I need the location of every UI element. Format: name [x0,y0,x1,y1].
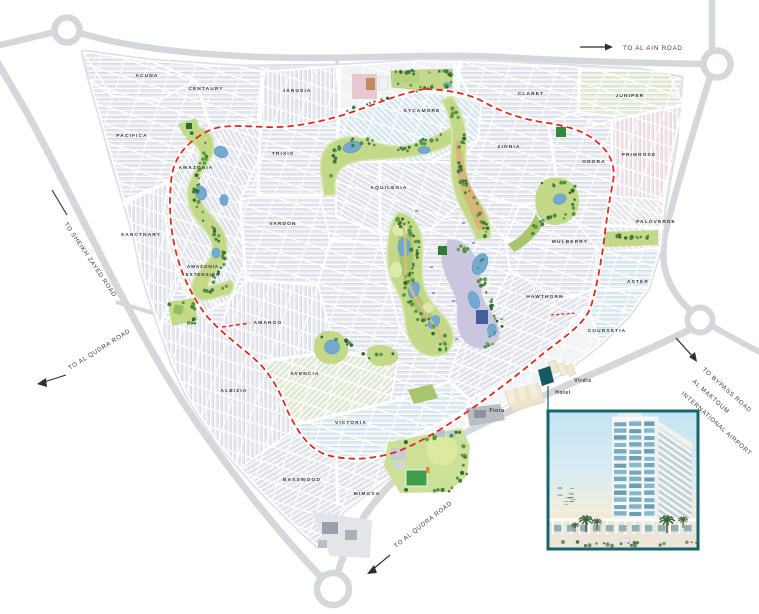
svg-text:TO AL QUDRA ROAD: TO AL QUDRA ROAD [393,500,454,550]
svg-text:TO AL AIN ROAD: TO AL AIN ROAD [623,45,683,52]
svg-text:AQUILEGIA: AQUILEGIA [371,185,408,191]
svg-text:BASSWOOD: BASSWOOD [283,477,321,483]
svg-text:SANCTNARY: SANCTNARY [121,232,161,238]
svg-text:Hotel: Hotel [555,390,571,396]
svg-text:PALOVERDE: PALOVERDE [636,219,676,225]
svg-text:ALBIZIA: ALBIZIA [221,388,248,394]
svg-text:Fiora: Fiora [489,408,504,414]
svg-text:AMAZONIA: AMAZONIA [187,264,219,269]
svg-text:JANUSIA: JANUSIA [282,88,311,94]
svg-text:CLARET: CLARET [518,91,544,97]
svg-text:PRIMROSE: PRIMROSE [622,152,657,158]
svg-text:ZINNIA: ZINNIA [498,144,521,150]
svg-text:AVENCIA: AVENCIA [290,371,319,377]
svg-text:ODORA: ODORA [582,159,606,165]
svg-text:Virdis: Virdis [574,378,591,384]
svg-text:MIMOSA: MIMOSA [354,491,381,497]
svg-text:HAWTHORN: HAWTHORN [526,294,563,300]
svg-text:SYCAMORE: SYCAMORE [404,108,441,114]
svg-text:VICTORIA: VICTORIA [335,420,367,426]
svg-text:VARDON: VARDON [269,221,296,227]
svg-text:ASTER: ASTER [627,279,649,285]
svg-text:CENTAURY: CENTAURY [188,86,223,92]
svg-text:COURSETIA: COURSETIA [588,328,627,334]
svg-text:AMAZONIA: AMAZONIA [178,165,213,171]
svg-text:AMARGO: AMARGO [254,320,283,326]
svg-text:TRIXIS: TRIXIS [272,151,294,157]
svg-text:MULBERRY: MULBERRY [552,239,588,245]
svg-text:PACIFICA: PACIFICA [116,133,148,139]
svg-text:TO AL QUDRA ROAD: TO AL QUDRA ROAD [67,328,132,372]
svg-text:ACUNA: ACUNA [135,73,158,79]
svg-text:EXTENSION: EXTENSION [186,272,221,277]
svg-text:JUNIPER: JUNIPER [616,93,645,99]
